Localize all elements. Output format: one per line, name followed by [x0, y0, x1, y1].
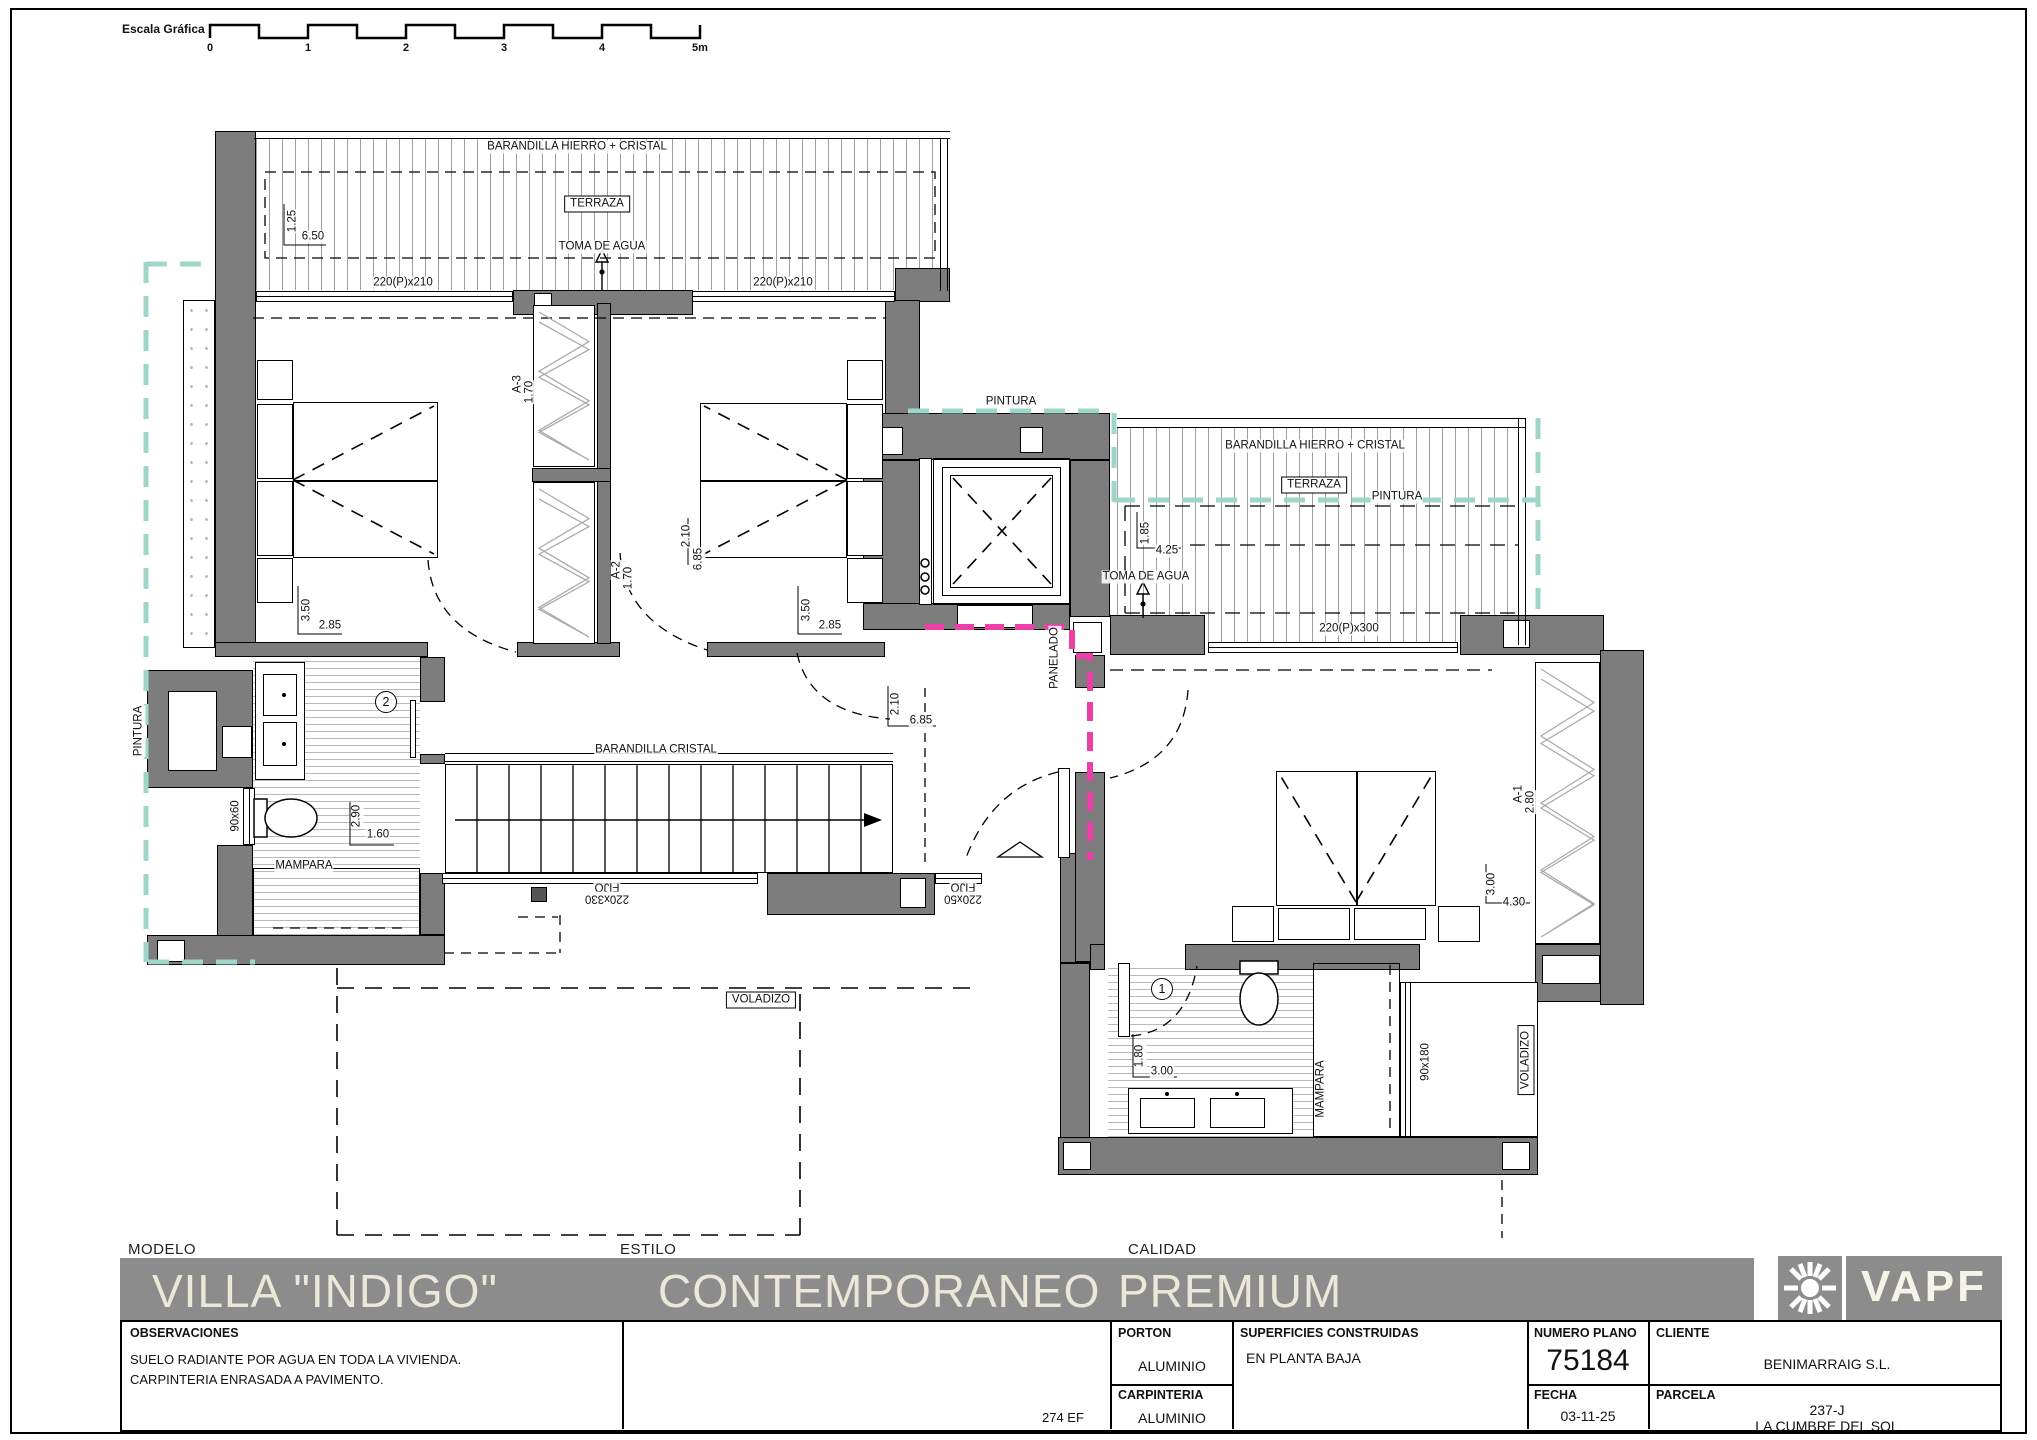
label-ventana-220x300: 220(P)x300 [1318, 623, 1379, 636]
label-terraza-norte: TERRAZA [564, 196, 630, 213]
label-toma-agua-norte: TOMA DE AGUA [558, 241, 647, 254]
dim-bano1-ancho: 1.80 [1134, 1044, 1147, 1068]
label-terraza-este: TERRAZA [1281, 477, 1347, 494]
label-pintura-ascensor: PINTURA [985, 396, 1037, 409]
dim-distribuidor-largo: 6.85 [909, 715, 933, 728]
badge-bano-2: 2 [375, 691, 397, 713]
dim-terraza-este-ancho: 1.85 [1140, 521, 1153, 545]
dim-dormitorio2-ancho: 3.50 [301, 598, 314, 622]
dim-bano1-largo: 3.00 [1150, 1066, 1174, 1079]
dim-bano2-largo: 1.60 [366, 829, 390, 842]
label-fijo-50-b: 220x50 [943, 892, 983, 905]
label-mampara-bano1: MAMPARA [1315, 1059, 1328, 1118]
label-toma-agua-este: TOMA DE AGUA [1102, 571, 1191, 584]
wardrobe-rail-symbol [539, 312, 589, 460]
dim-terraza-este-largo: 4.25 [1155, 545, 1179, 558]
dim-dormitorio3-largo: 2.85 [818, 620, 842, 633]
label-voladizo-este: VOLADIZO [1518, 1025, 1535, 1095]
dim-armario-a2: 1.70 [623, 566, 636, 590]
dim-armario-a1: 2.80 [1525, 790, 1538, 814]
label-panelado: PANELADO [1049, 626, 1062, 690]
dim-terraza-norte-ancho: 1.25 [287, 209, 300, 233]
label-ventana-220x210-izq: 220(P)x210 [372, 277, 433, 290]
wardrobe-rail-symbol [539, 489, 589, 637]
label-barandilla-terraza-este: BARANDILLA HIERRO + CRISTAL [1224, 440, 1406, 453]
dim-dormitorio1-ancho: 3.00 [1486, 872, 1499, 896]
label-ventana-90x180: 90x180 [1420, 1042, 1433, 1082]
dim-dormitorio3-ancho: 3.50 [801, 598, 814, 622]
label-barandilla-escalera: BARANDILLA CRISTAL [594, 744, 718, 757]
dim-distribuidor-ancho: 2.10 [890, 692, 903, 716]
plan-linework [0, 0, 2037, 1440]
dim-pasillo-ancho: 2.10 [681, 524, 694, 548]
drawing-sheet: Escala Gráfica [0, 0, 2037, 1440]
dim-dormitorio2-largo: 2.85 [318, 620, 342, 633]
label-pintura-oeste: PINTURA [133, 705, 146, 757]
dim-armario-a3: 1.70 [524, 380, 537, 404]
dim-terraza-norte-largo: 6.50 [301, 231, 325, 244]
dim-pasillo-largo: 6.85 [693, 547, 706, 571]
dim-bano2-ancho: 2.90 [351, 804, 364, 828]
wardrobe-rail-symbol [1541, 669, 1594, 937]
label-ventana-90x60: 90x60 [230, 799, 243, 832]
label-mampara-bano2: MAMPARA [274, 860, 333, 873]
dim-dormitorio1-largo: 4.30 [1502, 897, 1526, 910]
label-fijo-330-b: 220x330 [584, 892, 630, 905]
label-ventana-220x210-der: 220(P)x210 [752, 277, 813, 290]
label-voladizo-sur: VOLADIZO [726, 992, 796, 1009]
badge-bano-1: 1 [1151, 978, 1173, 1000]
label-pintura-terraza-este: PINTURA [1371, 491, 1423, 504]
label-barandilla-terraza-norte: BARANDILLA HIERRO + CRISTAL [486, 141, 668, 154]
